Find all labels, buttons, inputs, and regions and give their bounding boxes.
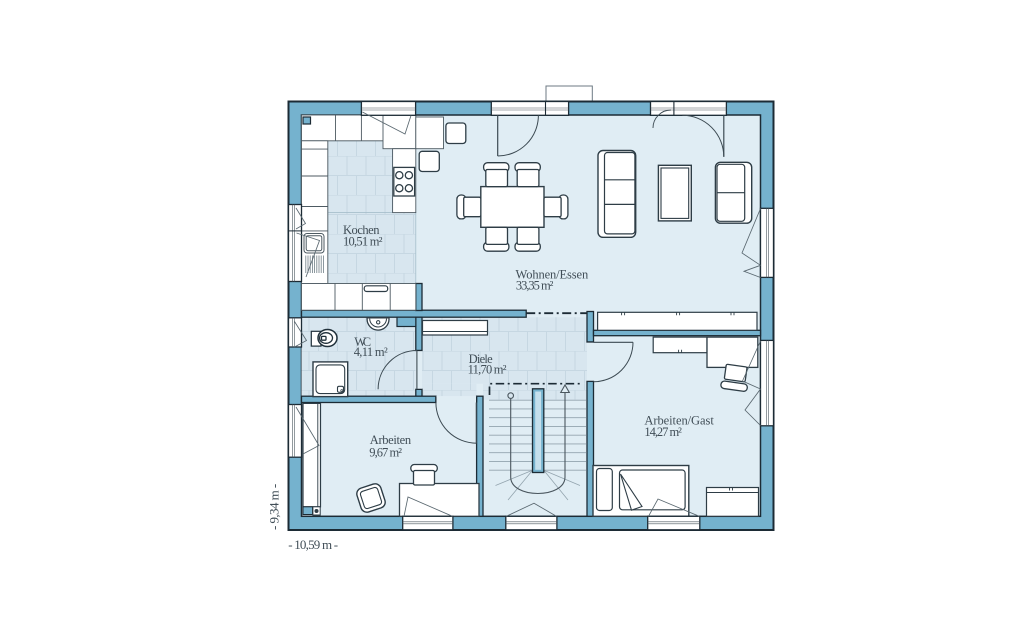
svg-text:- 10,59 m -: - 10,59 m - xyxy=(288,537,338,552)
svg-text:9,67 m²: 9,67 m² xyxy=(369,445,402,459)
svg-text:33,35 m²: 33,35 m² xyxy=(516,278,554,292)
svg-text:4,11 m²: 4,11 m² xyxy=(354,345,388,359)
svg-text:- 9,34 m -: - 9,34 m - xyxy=(267,484,282,530)
svg-text:11,70 m²: 11,70 m² xyxy=(468,362,507,376)
svg-text:14,27 m²: 14,27 m² xyxy=(644,425,682,439)
svg-text:10,51 m²: 10,51 m² xyxy=(343,235,383,249)
